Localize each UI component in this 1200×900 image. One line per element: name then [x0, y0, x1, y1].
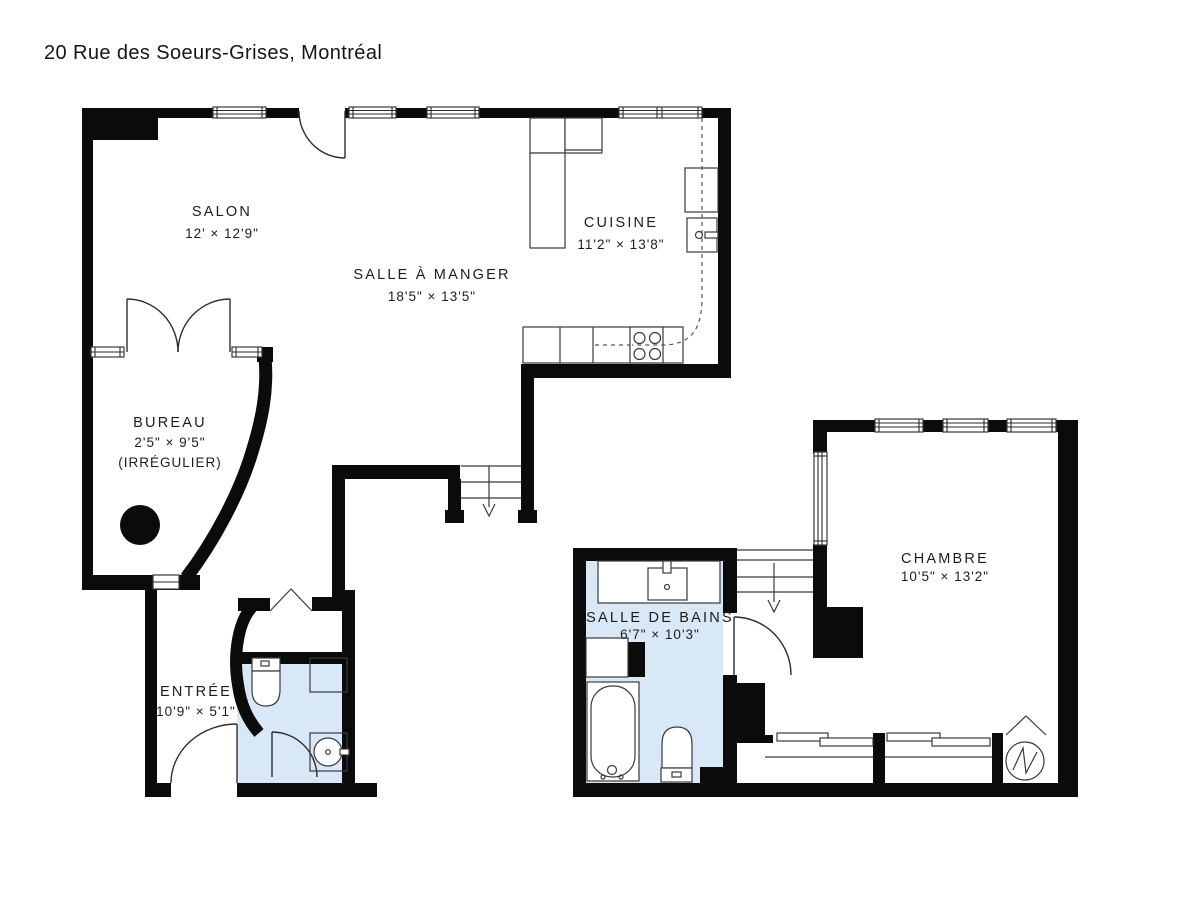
column-symbol	[120, 505, 160, 545]
wall-segment	[873, 733, 885, 783]
wall-segment	[700, 767, 728, 785]
room-dims-bureau: 2'5" × 9'5"	[134, 435, 205, 450]
window	[943, 419, 988, 432]
sliding-door-panel	[820, 738, 873, 746]
arch-opening	[1006, 716, 1046, 735]
water-heater-symbol	[1006, 742, 1044, 780]
toilet	[252, 658, 280, 706]
front-door	[171, 724, 237, 797]
window	[1007, 419, 1056, 432]
wall-segment	[445, 510, 464, 523]
window	[427, 107, 479, 118]
floor-plan-page: 20 Rue des Soeurs-Grises, Montréal	[0, 0, 1200, 900]
room-label-salon: SALON	[192, 204, 252, 220]
room-dims-cuisine: 11'2" × 13'8"	[577, 237, 664, 252]
entry-balcony-door	[299, 106, 345, 158]
room-label-salle-de-bains: SALLE DE BAINS	[586, 610, 734, 626]
kitchen-cabinet	[565, 118, 602, 153]
stairs-main	[461, 466, 521, 516]
room-label-cuisine: CUISINE	[584, 215, 658, 231]
wall-segment	[518, 510, 537, 523]
room-dims-salle-de-bains: 6'7" × 10'3"	[620, 627, 700, 642]
room-note-bureau: (IRRÉGULIER)	[118, 455, 222, 470]
wall-segment	[521, 364, 731, 378]
room-dims-chambre: 10'5" × 13'2"	[901, 569, 989, 584]
arch-opening	[270, 589, 312, 611]
bathroom-vanity	[598, 561, 720, 603]
room-label-bureau: BUREAU	[133, 415, 207, 431]
room-dims-salon: 12' × 12'9"	[185, 226, 259, 241]
window-double	[619, 107, 702, 118]
sliding-door-panel	[932, 738, 990, 746]
kitchen-cabinet	[530, 118, 565, 153]
window	[349, 107, 396, 118]
wall-segment	[312, 597, 345, 611]
window-sill	[91, 347, 124, 357]
wall-segment	[573, 783, 1078, 797]
wall-segment	[145, 587, 157, 797]
window-vertical	[814, 452, 827, 545]
bathtub	[587, 682, 639, 781]
wall-segment	[718, 108, 731, 378]
wall-segment	[332, 465, 345, 611]
stairs-bedroom	[737, 550, 813, 612]
window-sill	[232, 347, 262, 357]
room-dims-entree: 10'9" × 5'1"	[156, 704, 236, 719]
wall-segment	[992, 733, 1003, 783]
room-label-chambre: CHAMBRE	[901, 551, 989, 567]
room-label-entree: ENTRÉE	[160, 683, 232, 700]
french-doors-bureau	[126, 299, 231, 358]
bathroom-shelf	[586, 638, 628, 677]
wall-segment	[573, 548, 737, 561]
wall-segment	[723, 735, 773, 743]
wall-segment	[723, 683, 765, 743]
window-small	[153, 575, 179, 589]
wall-segment	[448, 479, 461, 510]
wall-segment	[82, 108, 158, 140]
window	[875, 419, 923, 432]
wall-segment	[342, 590, 355, 797]
wall-segment	[723, 561, 737, 613]
bathroom-door	[734, 617, 791, 675]
kitchen-fridge	[530, 153, 565, 248]
floor-plan: SALON 12' × 12'9" SALLE À MANGER 18'5" ×…	[0, 0, 1200, 900]
wall-segment	[573, 548, 586, 797]
wall-segment	[628, 642, 645, 677]
window	[213, 107, 266, 118]
wall-segment	[1058, 420, 1078, 797]
wall-segment	[332, 465, 460, 479]
toilet	[661, 727, 692, 782]
wall-segment	[815, 607, 863, 658]
wall-segment	[82, 575, 200, 590]
room-label-salle-a-manger: SALLE À MANGER	[353, 266, 510, 283]
room-dims-salle-a-manger: 18'5" × 13'5"	[388, 289, 476, 304]
wall-segment	[813, 420, 827, 454]
wall-segment	[521, 364, 534, 510]
